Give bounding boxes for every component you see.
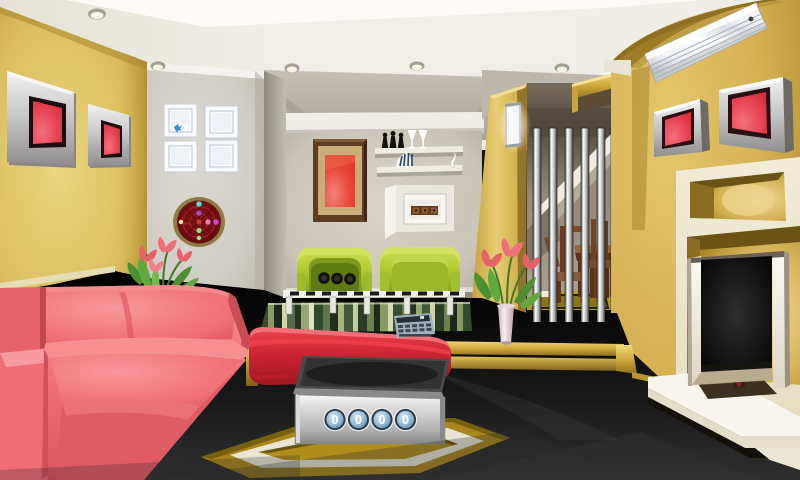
- svg-text:0: 0: [332, 413, 339, 427]
- svg-text:0: 0: [379, 413, 386, 427]
- svg-text:500: 500: [184, 222, 190, 226]
- svg-text:0: 0: [355, 413, 362, 427]
- svg-text:0: 0: [402, 413, 409, 427]
